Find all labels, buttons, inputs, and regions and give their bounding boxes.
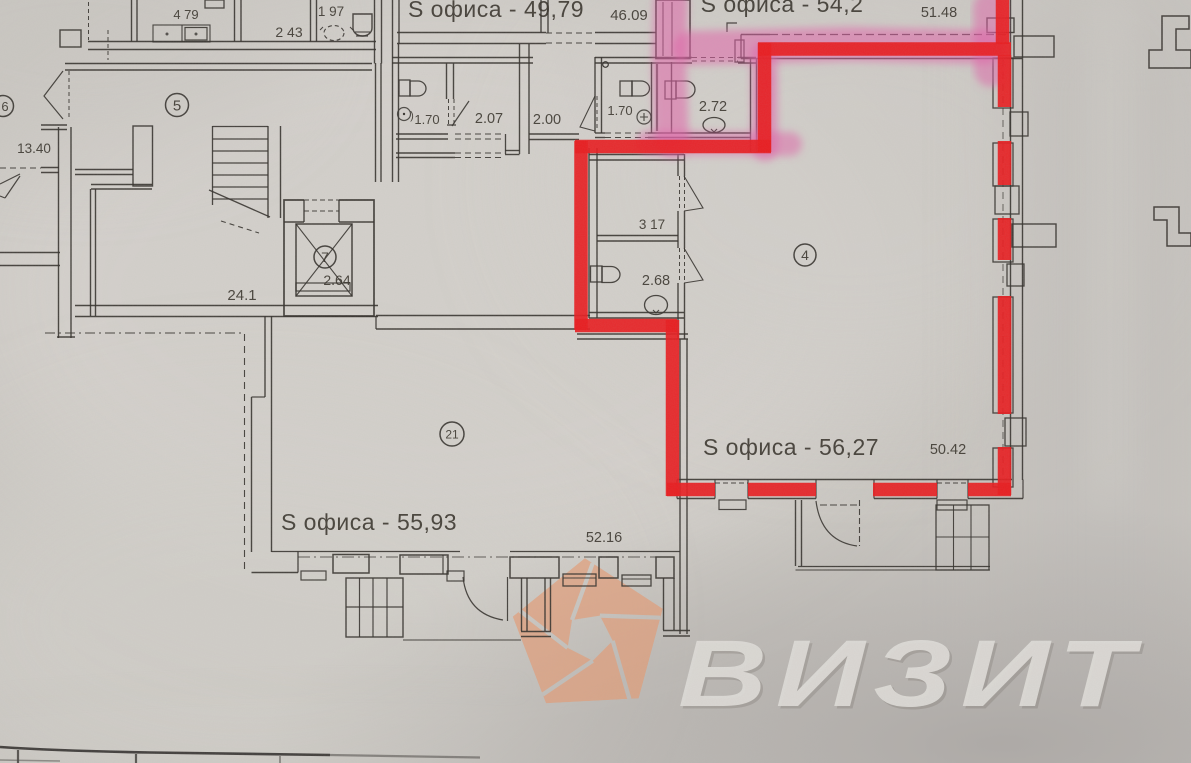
svg-text:2 43: 2 43 <box>275 24 302 40</box>
svg-text:2.72: 2.72 <box>699 99 727 115</box>
svg-text:S офиса - 55,93: S офиса - 55,93 <box>281 509 457 535</box>
svg-text:ВИЗИТ: ВИЗИТ <box>678 621 1143 727</box>
svg-text:1.70: 1.70 <box>414 112 439 127</box>
svg-text:6: 6 <box>1 99 8 114</box>
svg-text:): ) <box>410 110 414 122</box>
svg-text:2.07: 2.07 <box>475 111 503 127</box>
svg-text:24.1: 24.1 <box>227 287 256 304</box>
svg-text:52.16: 52.16 <box>586 530 622 546</box>
svg-text:2.64: 2.64 <box>323 272 350 288</box>
svg-text:2.68: 2.68 <box>642 273 670 289</box>
svg-text:7: 7 <box>321 249 329 265</box>
svg-text:2.00: 2.00 <box>533 112 561 128</box>
svg-text:46.09: 46.09 <box>610 7 648 24</box>
svg-text:21: 21 <box>445 427 459 441</box>
svg-text:13.40: 13.40 <box>17 141 51 156</box>
svg-text:50.42: 50.42 <box>930 442 966 458</box>
svg-text:S офиса - 49,79: S офиса - 49,79 <box>408 0 584 22</box>
svg-text:S офиса - 56,27: S офиса - 56,27 <box>703 434 879 460</box>
svg-text:1 97: 1 97 <box>318 4 344 19</box>
svg-text:S офиса - 54,2: S офиса - 54,2 <box>701 0 864 17</box>
svg-text:4 79: 4 79 <box>173 7 198 22</box>
svg-text:3 17: 3 17 <box>639 217 665 232</box>
svg-text:51.48: 51.48 <box>921 5 957 21</box>
svg-text:5: 5 <box>173 97 181 114</box>
svg-text:1.70: 1.70 <box>607 103 632 118</box>
svg-text:4: 4 <box>801 247 809 263</box>
